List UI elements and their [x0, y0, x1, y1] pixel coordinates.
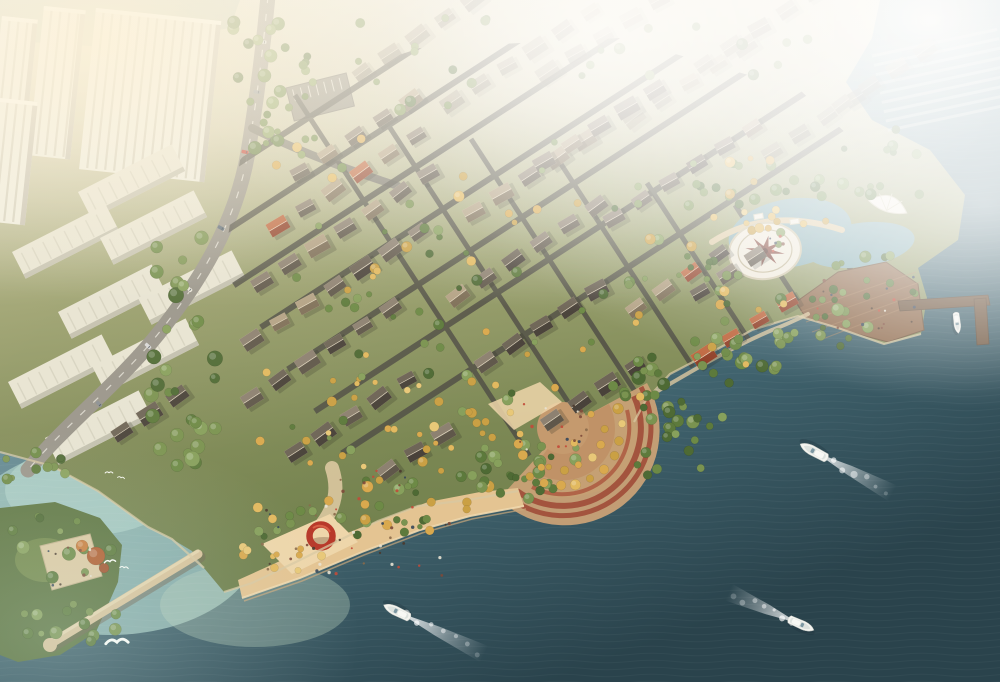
aerial-rendering-canvas — [0, 0, 1000, 682]
fog-overlay — [0, 0, 1000, 682]
scene-svg — [0, 0, 1000, 682]
